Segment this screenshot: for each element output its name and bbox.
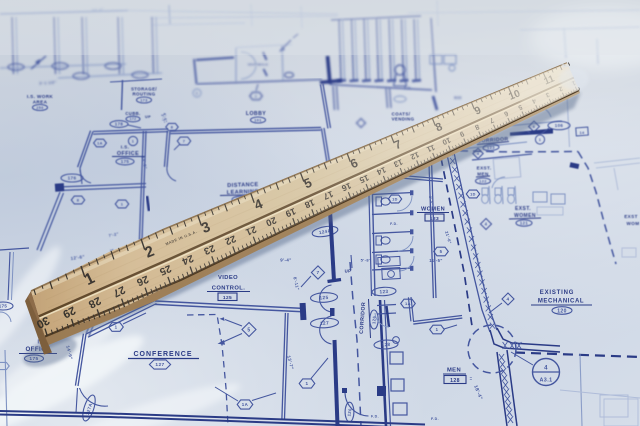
svg-text:ROUTING: ROUTING bbox=[132, 92, 155, 97]
svg-text:121: 121 bbox=[520, 221, 528, 226]
svg-text:125: 125 bbox=[319, 295, 329, 301]
svg-text:1A: 1A bbox=[242, 402, 249, 407]
svg-text:127: 127 bbox=[155, 362, 164, 368]
svg-text:CUBB.: CUBB. bbox=[125, 111, 140, 116]
svg-text:2: 2 bbox=[255, 94, 257, 98]
svg-text:7: 7 bbox=[183, 138, 186, 143]
svg-text:176: 176 bbox=[68, 176, 77, 181]
svg-text:DISTANCE: DISTANCE bbox=[227, 182, 259, 189]
svg-text:1A: 1A bbox=[97, 141, 103, 145]
svg-text:123: 123 bbox=[379, 289, 388, 294]
svg-text:178: 178 bbox=[115, 122, 124, 127]
svg-text:128: 128 bbox=[381, 342, 390, 347]
svg-text:P.O.: P.O. bbox=[404, 86, 412, 90]
svg-text:1: 1 bbox=[306, 381, 309, 386]
svg-text:MEN: MEN bbox=[447, 368, 461, 374]
svg-text:4: 4 bbox=[485, 222, 488, 227]
svg-text:1: 1 bbox=[115, 325, 118, 330]
svg-text:1: 1 bbox=[121, 201, 124, 206]
svg-text:5: 5 bbox=[247, 327, 250, 333]
svg-text:VESTIBULE: VESTIBULE bbox=[248, 63, 268, 67]
svg-text:VIDEO: VIDEO bbox=[218, 275, 238, 281]
svg-text:1D: 1D bbox=[392, 197, 398, 201]
svg-text:175: 175 bbox=[121, 159, 130, 164]
svg-text:F.D.: F.D. bbox=[371, 415, 379, 419]
svg-text:9'-4": 9'-4" bbox=[280, 258, 291, 263]
svg-text:1A: 1A bbox=[405, 301, 411, 306]
svg-text:EXST.: EXST. bbox=[515, 206, 531, 212]
svg-text:11'-5": 11'-5" bbox=[429, 258, 443, 263]
svg-text:128: 128 bbox=[450, 378, 460, 384]
svg-text:8: 8 bbox=[171, 125, 174, 129]
svg-text:173: 173 bbox=[140, 98, 147, 102]
svg-text:CONFERENCE: CONFERENCE bbox=[133, 351, 192, 358]
svg-text:UP: UP bbox=[145, 115, 151, 119]
svg-text:7: 7 bbox=[316, 270, 319, 276]
svg-text:120: 120 bbox=[557, 308, 567, 314]
svg-text:VENDING: VENDING bbox=[392, 117, 415, 122]
svg-text:I.S.: I.S. bbox=[121, 145, 130, 150]
svg-text:1D: 1D bbox=[470, 192, 476, 196]
svg-text:5: 5 bbox=[440, 249, 443, 254]
svg-text:1: 1 bbox=[132, 140, 135, 144]
svg-text:101: 101 bbox=[254, 118, 262, 122]
svg-text:EXST: EXST bbox=[624, 214, 638, 219]
svg-text:125: 125 bbox=[223, 295, 232, 301]
svg-text:4: 4 bbox=[544, 366, 548, 372]
svg-text:=: = bbox=[470, 376, 473, 381]
svg-text:1: 1 bbox=[539, 138, 542, 142]
svg-text:LOBBY: LOBBY bbox=[246, 111, 266, 117]
svg-text:1: 1 bbox=[196, 92, 198, 96]
svg-text:F.D.: F.D. bbox=[431, 417, 439, 421]
svg-text:127: 127 bbox=[320, 320, 330, 326]
svg-text:106: 106 bbox=[555, 123, 564, 128]
svg-text:172: 172 bbox=[130, 117, 137, 121]
svg-text:F.D.: F.D. bbox=[390, 222, 398, 226]
svg-text:WOM: WOM bbox=[627, 221, 640, 226]
svg-text:122: 122 bbox=[479, 178, 487, 183]
svg-text:5'-8": 5'-8" bbox=[361, 258, 372, 263]
svg-text:CONTROL.: CONTROL. bbox=[212, 286, 245, 292]
svg-text:EXST.: EXST. bbox=[477, 166, 492, 171]
svg-text:RX5: RX5 bbox=[454, 96, 461, 100]
svg-text:UP: UP bbox=[345, 269, 352, 274]
svg-text:MECHANICAL: MECHANICAL bbox=[538, 299, 584, 305]
svg-text:4: 4 bbox=[507, 297, 510, 302]
svg-text:14: 14 bbox=[579, 131, 585, 135]
svg-text:250: 250 bbox=[36, 106, 43, 110]
svg-text:A3.1: A3.1 bbox=[540, 378, 553, 384]
svg-text:8: 8 bbox=[77, 197, 80, 202]
svg-text:EXISTING: EXISTING bbox=[540, 290, 574, 296]
svg-text:175: 175 bbox=[0, 304, 7, 309]
svg-text:1: 1 bbox=[436, 327, 439, 332]
svg-text:AREA: AREA bbox=[33, 100, 48, 105]
svg-text:I.S. WORK: I.S. WORK bbox=[27, 94, 54, 99]
